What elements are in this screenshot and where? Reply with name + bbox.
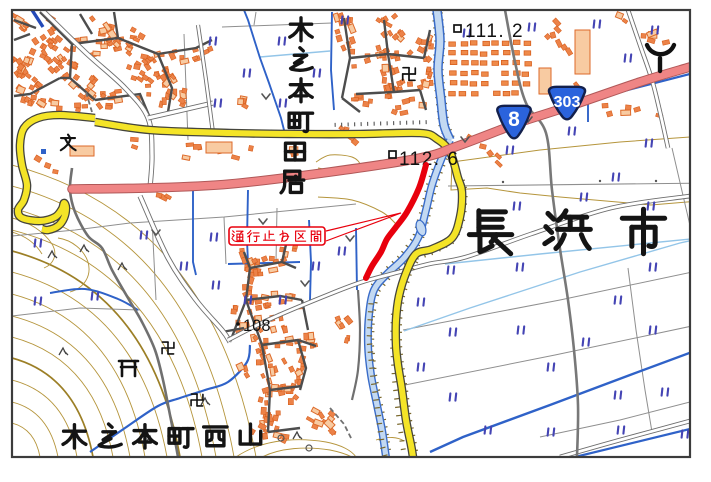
svg-text:303: 303 xyxy=(554,94,581,111)
svg-text:8: 8 xyxy=(508,108,520,131)
svg-text:111. 2: 111. 2 xyxy=(465,21,524,42)
svg-text:112. 6: 112. 6 xyxy=(399,149,459,170)
svg-text:108: 108 xyxy=(243,317,271,335)
